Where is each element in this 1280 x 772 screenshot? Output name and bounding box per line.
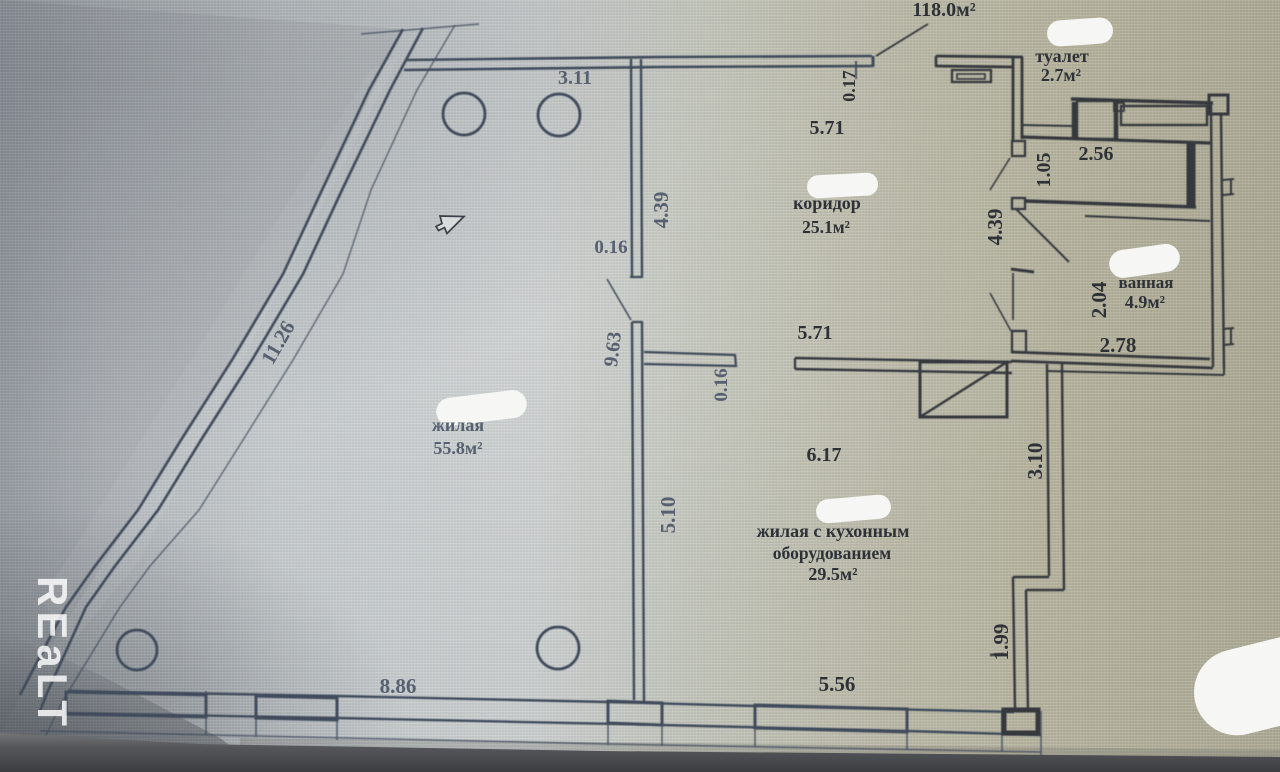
svg-text:1.05: 1.05 xyxy=(1033,153,1055,188)
svg-text:5.71: 5.71 xyxy=(798,322,833,344)
svg-text:жилая с кухонным: жилая с кухонным xyxy=(757,521,910,541)
svg-text:3.10: 3.10 xyxy=(1023,443,1047,480)
svg-text:туалет: туалет xyxy=(1035,46,1089,66)
svg-text:4.39: 4.39 xyxy=(983,209,1007,246)
svg-text:2.56: 2.56 xyxy=(1079,143,1114,165)
svg-text:0.16: 0.16 xyxy=(594,237,627,258)
svg-text:29.5м²: 29.5м² xyxy=(808,564,857,584)
svg-text:4.39: 4.39 xyxy=(649,192,673,229)
svg-text:6.17: 6.17 xyxy=(807,444,842,466)
svg-text:3.11: 3.11 xyxy=(558,67,592,89)
svg-text:0.16: 0.16 xyxy=(711,368,732,401)
svg-text:REaLT: REaLT xyxy=(29,576,76,731)
svg-text:ванная: ванная xyxy=(1119,273,1174,292)
svg-text:5.71: 5.71 xyxy=(810,117,845,139)
svg-text:25.1м²: 25.1м² xyxy=(802,217,850,237)
svg-text:0.17: 0.17 xyxy=(839,70,859,102)
svg-text:коридор: коридор xyxy=(793,193,861,213)
svg-text:9.63: 9.63 xyxy=(600,331,626,368)
svg-text:118.0м²: 118.0м² xyxy=(912,0,976,21)
svg-text:2.78: 2.78 xyxy=(1100,333,1137,357)
svg-text:1.99: 1.99 xyxy=(989,624,1013,661)
svg-text:2.7м²: 2.7м² xyxy=(1041,65,1081,85)
svg-text:55.8м²: 55.8м² xyxy=(433,438,482,458)
svg-text:4.9м²: 4.9м² xyxy=(1125,292,1165,312)
svg-text:5.56: 5.56 xyxy=(819,672,856,696)
svg-text:2.04: 2.04 xyxy=(1087,281,1111,318)
svg-text:жилая: жилая xyxy=(432,415,485,435)
svg-text:оборудованием: оборудованием xyxy=(773,543,891,563)
svg-text:8.86: 8.86 xyxy=(380,674,417,698)
svg-text:5.10: 5.10 xyxy=(656,497,680,534)
